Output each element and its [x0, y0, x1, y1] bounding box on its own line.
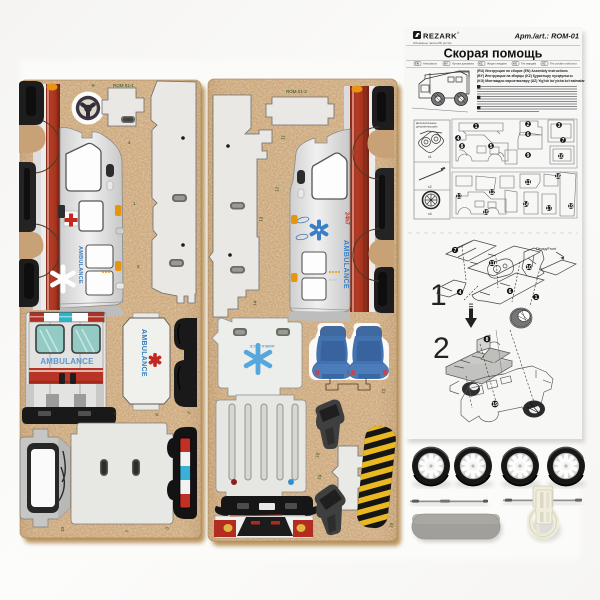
svg-text:BY: BY	[444, 62, 448, 66]
svg-text:9: 9	[527, 153, 530, 159]
svg-text:Арт./art.: ROM-01: Арт./art.: ROM-01	[514, 32, 579, 41]
svg-text:16: 16	[555, 174, 561, 180]
svg-text:(RU) Инструкция по сборке (EN): (RU) Инструкция по сборке (EN) Assembly …	[477, 69, 568, 73]
svg-text:15: 15	[483, 210, 489, 216]
svg-text:10: 10	[558, 154, 564, 160]
svg-text:Объёмные пазлы/3D puzzle: Объёмные пазлы/3D puzzle	[413, 41, 452, 45]
svg-text:ROM 01-1: ROM 01-1	[113, 83, 134, 88]
svg-text:13: 13	[456, 194, 462, 200]
svg-text:х4: х4	[428, 212, 432, 216]
svg-text:5: 5	[490, 144, 493, 150]
svg-text:3: 3	[558, 123, 561, 129]
svg-text:Скорая помощь: Скорая помощь	[444, 47, 543, 61]
svg-text:(BY) Инструкцыя па зборцы (KZ): (BY) Инструкцыя па зборцы (KZ) Құрастыру…	[477, 74, 573, 78]
svg-text:EN: EN	[415, 62, 419, 66]
svg-text:KG: KG	[513, 62, 517, 66]
svg-text:AMBULANCE: AMBULANCE	[249, 344, 274, 349]
svg-text:Жедел жәрдем: Жедел жәрдем	[487, 62, 507, 66]
svg-text:REZARK: REZARK	[423, 32, 457, 41]
svg-text:10: 10	[60, 526, 65, 532]
svg-text:1: 1	[535, 295, 538, 301]
svg-text:AMBULANCE: AMBULANCE	[77, 246, 83, 284]
svg-text:4: 4	[459, 290, 462, 296]
svg-text:AMBULANCE: AMBULANCE	[140, 329, 147, 377]
svg-text:4: 4	[457, 136, 460, 142]
svg-text:7: 7	[562, 138, 565, 144]
svg-text:Хуткая дапамога: Хуткая дапамога	[452, 62, 474, 66]
svg-text:8: 8	[461, 144, 464, 150]
svg-text:KZ: KZ	[479, 62, 483, 66]
svg-text:12: 12	[489, 190, 495, 196]
svg-text:Тез жардам: Тез жардам	[521, 62, 536, 66]
svg-text:AMBULANCE: AMBULANCE	[342, 240, 351, 289]
svg-text:11: 11	[489, 261, 495, 267]
svg-text:2: 2	[433, 332, 450, 365]
svg-text:6: 6	[527, 132, 530, 138]
svg-text:детали/extra parts: детали/extra parts	[416, 124, 438, 128]
svg-text:Tez yordam ma'lumot: Tez yordam ma'lumot	[550, 62, 577, 66]
svg-text:24h7: 24h7	[344, 212, 350, 225]
svg-text:10: 10	[526, 265, 532, 271]
svg-text:х1: х1	[428, 155, 432, 159]
svg-text:8: 8	[486, 337, 489, 343]
svg-text:17: 17	[546, 206, 552, 212]
svg-text:14: 14	[523, 202, 529, 208]
svg-text:х2: х2	[428, 185, 432, 189]
svg-text:1: 1	[475, 124, 478, 130]
svg-text:AMBULANCE: AMBULANCE	[40, 357, 94, 366]
svg-text:2: 2	[527, 122, 530, 128]
svg-text:ROM 01-2: ROM 01-2	[286, 89, 307, 94]
svg-text:19: 19	[568, 204, 574, 210]
svg-text:6: 6	[509, 289, 512, 295]
svg-text:Перед/Front: Перед/Front	[536, 247, 556, 251]
svg-text:(KG) Монтаждоо көрсөтмөлөрү (U: (KG) Монтаждоо көрсөтмөлөрү (UZ) Yig'ish…	[477, 79, 585, 83]
svg-text:Ambulance: Ambulance	[423, 62, 437, 66]
svg-text:11: 11	[525, 180, 531, 186]
svg-text:7: 7	[454, 248, 457, 254]
svg-text:19: 19	[492, 402, 498, 408]
svg-text:UZ: UZ	[542, 62, 546, 66]
